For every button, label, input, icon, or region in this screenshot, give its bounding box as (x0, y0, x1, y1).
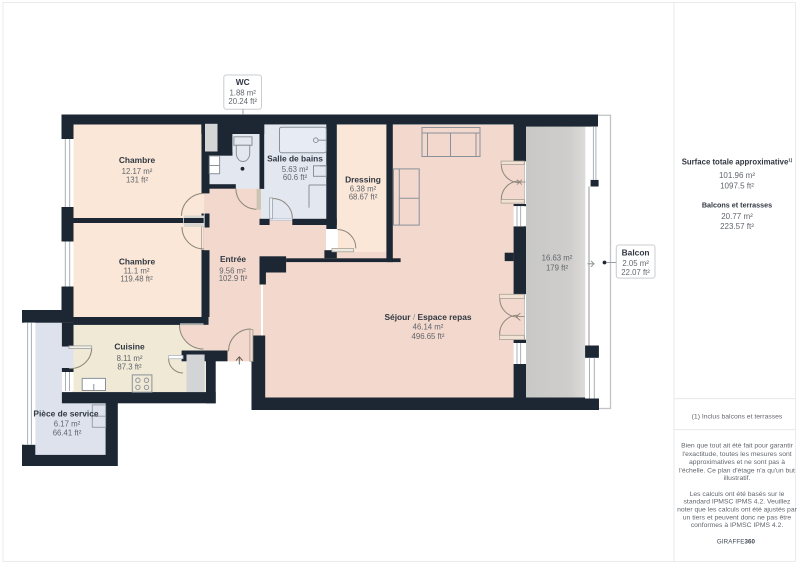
svg-text:Séjour / Espace repas: Séjour / Espace repas (384, 312, 471, 322)
svg-text:2.05 m²: 2.05 m² (622, 259, 649, 268)
svg-text:131 ft²: 131 ft² (126, 176, 149, 185)
svg-text:approximatives et ne sont pas: approximatives et ne sont pas à (689, 459, 785, 466)
svg-text:Pièce de service: Pièce de service (33, 409, 99, 419)
svg-text:496.65 ft²: 496.65 ft² (412, 332, 445, 341)
svg-text:Entrée: Entrée (220, 254, 246, 264)
svg-text:87.3 ft²: 87.3 ft² (117, 363, 142, 372)
svg-text:119.48 ft²: 119.48 ft² (120, 275, 153, 284)
svg-text:102.9 ft²: 102.9 ft² (219, 274, 248, 283)
svg-text:Balcons et terrasses: Balcons et terrasses (702, 201, 772, 210)
svg-text:16.63 m²: 16.63 m² (542, 253, 573, 262)
svg-text:Balcon: Balcon (622, 248, 650, 258)
svg-text:60.6 ft²: 60.6 ft² (283, 173, 308, 182)
svg-text:1097.5 ft²: 1097.5 ft² (720, 182, 754, 191)
svg-text:Surface totale approximative1): Surface totale approximative1) (682, 158, 793, 167)
svg-text:223.57 ft²: 223.57 ft² (720, 222, 754, 231)
svg-text:WC: WC (236, 77, 250, 87)
svg-text:101.96 m²: 101.96 m² (719, 171, 755, 180)
svg-text:l'exactitude, toutes les mesur: l'exactitude, toutes les mesures sont (682, 451, 791, 458)
svg-text:GIRAFFE360: GIRAFFE360 (717, 539, 756, 546)
svg-text:Bien que tout ait été fait pou: Bien que tout ait été fait pour garantir (681, 443, 794, 450)
svg-text:22.07 ft²: 22.07 ft² (621, 268, 650, 277)
svg-text:noter que les calculs ont été: noter que les calculs ont été ajustés pa… (677, 507, 798, 514)
svg-text:conformes à IPMSC IPMS 4.2.: conformes à IPMSC IPMS 4.2. (691, 522, 784, 529)
svg-text:Chambre: Chambre (119, 257, 156, 267)
svg-text:20.24 ft²: 20.24 ft² (228, 97, 257, 106)
svg-text:20.77 m²: 20.77 m² (721, 212, 753, 221)
svg-text:179 ft²: 179 ft² (546, 263, 569, 272)
svg-text:(1) Inclus balcons et terrasse: (1) Inclus balcons et terrasses (692, 413, 783, 420)
svg-text:Cuisine: Cuisine (114, 342, 145, 352)
svg-text:l'échelle. Ce plan d'étage n'a: l'échelle. Ce plan d'étage n'a qu'un but (679, 467, 795, 474)
svg-text:Les calculs ont été basés sur: Les calculs ont été basés sur le (690, 491, 785, 498)
svg-text:Chambre: Chambre (119, 155, 156, 165)
svg-text:Dressing: Dressing (345, 175, 381, 185)
svg-text:illustratif.: illustratif. (724, 475, 751, 482)
svg-text:Salle de bains: Salle de bains (267, 154, 323, 164)
svg-text:46.14 m²: 46.14 m² (413, 323, 444, 332)
svg-text:66.41 ft²: 66.41 ft² (53, 429, 82, 438)
svg-text:standard IPMSC IPMS 4.2. Veuil: standard IPMSC IPMS 4.2. Veuillez (684, 499, 792, 506)
svg-text:un tiers et peuvent donc ne pa: un tiers et peuvent donc ne pas être (683, 514, 792, 521)
svg-text:68.67 ft²: 68.67 ft² (349, 193, 378, 202)
svg-text:6.17 m²: 6.17 m² (54, 420, 81, 429)
